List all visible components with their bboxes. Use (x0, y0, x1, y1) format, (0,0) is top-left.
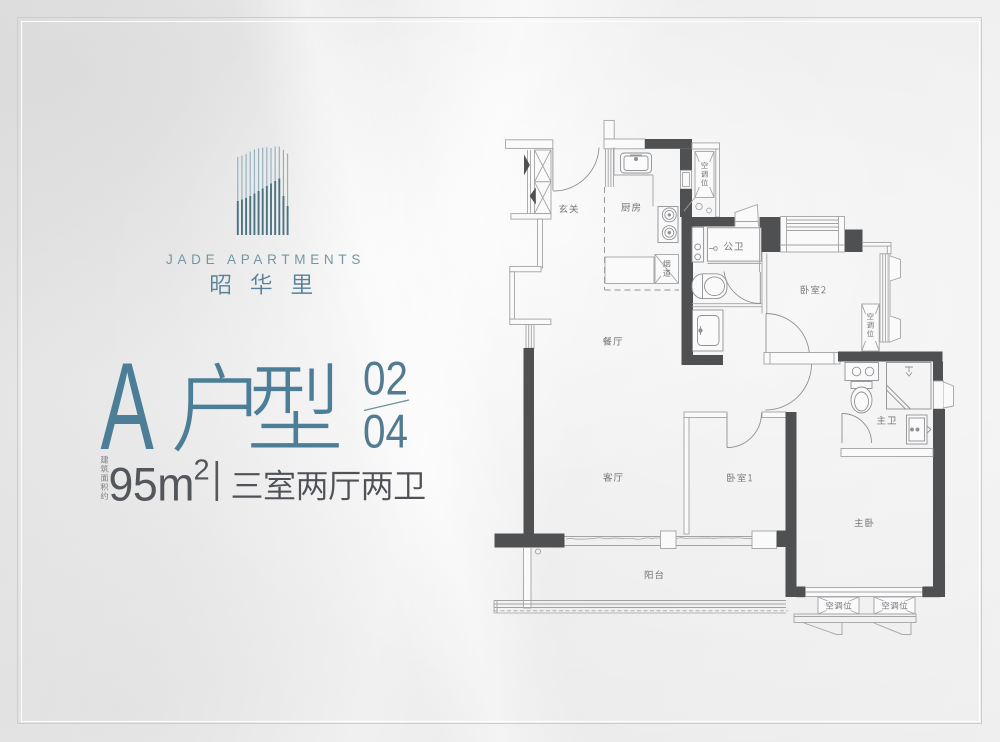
svg-text:95m: 95m (109, 458, 194, 510)
svg-text:A: A (101, 338, 155, 476)
svg-text:2: 2 (194, 454, 210, 486)
svg-text:02: 02 (363, 352, 408, 405)
svg-text:JADE APARTMENTS: JADE APARTMENTS (166, 252, 365, 267)
svg-text:04: 04 (363, 406, 408, 459)
